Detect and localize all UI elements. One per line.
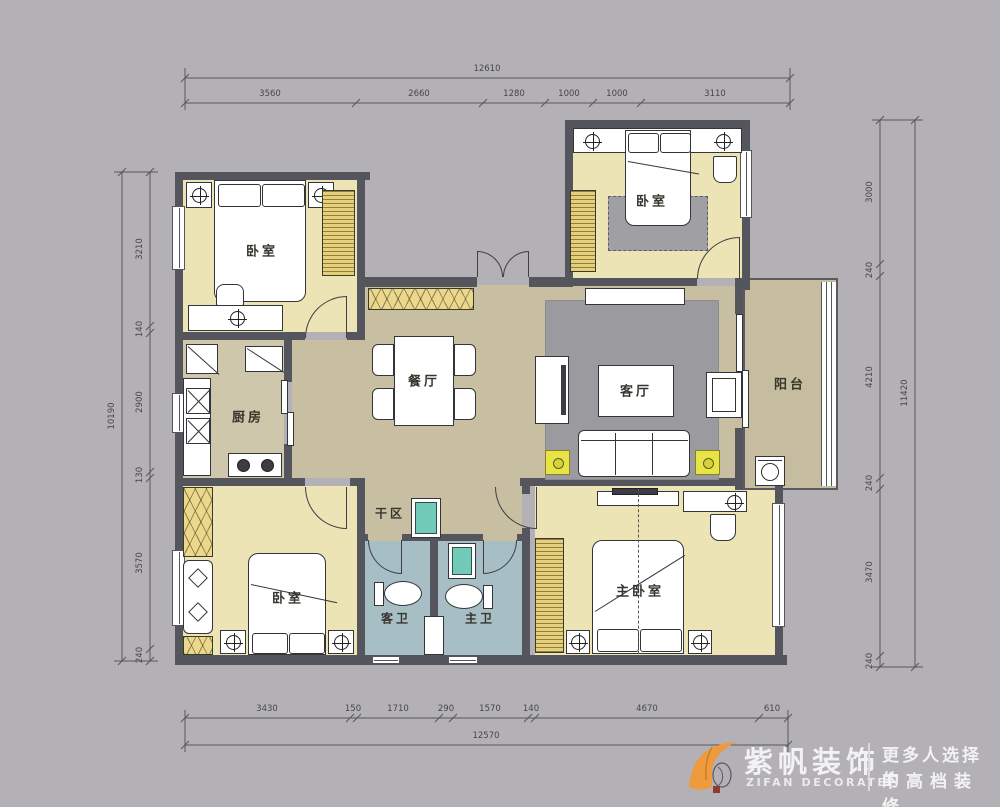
speaker [695,450,720,475]
dim-bottom-seg-6: 4670 [636,704,658,714]
dim-right-seg-5: 240 [865,653,875,669]
dim-bottom-seg-5: 140 [523,704,539,714]
floor-plan-canvas: 12610 3560 2660 1280 1000 1000 3110 3430… [0,0,1000,807]
dim-right-seg-3: 240 [865,475,875,491]
lamp-icon [334,635,349,650]
brand-tagline-2: 中高档装修 [882,767,1000,807]
wall-dry-master-b [517,534,530,541]
window-master-bath [448,656,478,664]
sail-logo-icon [682,735,742,797]
bed [625,130,691,226]
room-label-bedroom-top-right: 卧室 [636,191,668,210]
chaise-lounge [183,560,213,634]
desk-chair [710,514,736,541]
fan-icon [693,635,708,650]
toilet-bowl [384,581,422,606]
dining-chair [372,388,394,420]
wall-dry-master-a [438,534,483,541]
toilet-tank [374,582,384,606]
room-label-kitchen: 厨房 [232,407,264,426]
dim-right-seg-4: 3470 [865,561,875,583]
bed-centerline [638,489,639,659]
window-bedroom-top-left [172,206,185,270]
pillow [597,629,639,652]
room-label-guest-bath: 客卫 [381,610,411,627]
pillow [218,184,261,207]
washbasin [415,502,437,534]
wardrobe [183,636,213,655]
wall-kitchen-right-b [284,444,292,478]
wall-bed1-bottom-b [347,332,365,340]
pillow [660,133,691,153]
dim-top-seg-0: 3560 [259,89,281,99]
burner [237,459,250,472]
toilet-tank [483,585,493,609]
wall-bottom-outer [175,655,787,665]
balcony-slider-panel-1 [736,314,743,372]
wall-kitchen-right-a [284,340,292,382]
wall-master-left-lower [522,528,530,655]
balcony-slider-panel-2 [742,370,749,428]
wall-top-left [175,172,370,180]
side-unit [535,356,569,424]
dim-left-seg-3: 130 [135,467,145,483]
logo-divider [868,743,870,791]
kitchen-sink [186,418,210,444]
room-label-dining: 餐厅 [408,371,440,390]
dim-bottom-total: 12570 [472,731,499,741]
kitchen-sink [186,388,210,414]
desk-chair [713,156,737,183]
dim-right-seg-2: 4210 [865,366,875,388]
dim-bottom-seg-1: 150 [345,704,361,714]
lamp-icon [192,188,207,203]
dim-top-seg-4: 1000 [606,89,628,99]
cushion [188,568,208,588]
sofa-back [581,440,688,441]
wardrobe [570,190,596,272]
dim-top-seg-1: 2660 [408,89,430,99]
dim-bottom-seg-2: 1710 [387,704,409,714]
room-label-bedroom-top-left: 卧室 [246,241,278,260]
wall-bed3-top-a [175,478,305,486]
cushion [188,602,208,622]
shower-door [424,616,444,655]
armchair-seat [712,378,736,412]
wall-dry-guest-b [402,534,438,541]
dim-left-seg-5: 240 [135,647,145,663]
washer-panel [758,460,782,461]
speaker [545,450,570,475]
wall-balcony-top-stub [735,286,743,314]
dim-left-seg-2: 2900 [135,391,145,413]
window-guest-bath [372,656,400,664]
wall-bed1-right [357,172,365,340]
wall-bed1-bottom-a [175,332,305,340]
desk-chair [216,284,244,306]
pillow [262,184,305,207]
lamp-icon [727,495,742,510]
lamp-icon [230,311,245,326]
wall-bed2-bottom-b [735,278,750,286]
room-label-living: 客厅 [620,381,652,400]
wardrobe [183,487,213,557]
room-corridor [292,340,365,478]
pillow [628,133,659,153]
tv-cabinet [585,288,685,305]
wall-bed3-right [357,478,365,665]
dim-right-seg-1: 240 [865,262,875,278]
dim-top-seg-5: 3110 [704,89,726,99]
dim-bottom-seg-3: 290 [438,704,454,714]
wall-bed2-bottom-a [565,278,697,286]
wall-hall-top-a [357,277,477,287]
stove [228,453,282,477]
toilet-bowl [445,584,483,609]
pillow [289,633,325,654]
window-bedroom-top-right [740,150,752,218]
room-label-master-bath: 主卫 [465,610,495,627]
lamp-icon [585,134,600,149]
wall-dry-guest-a [357,534,368,541]
tv-screen [612,488,658,495]
shoe-cabinet [368,288,474,310]
armchair [706,372,742,418]
washbasin [452,547,472,575]
dim-top-seg-2: 1280 [503,89,525,99]
washing-machine [755,456,785,486]
room-label-bedroom-bottom-left: 卧室 [272,588,304,607]
sofa [578,430,690,477]
room-label-balcony: 阳台 [774,374,806,393]
window-master-bedroom [772,503,785,627]
room-label-dry-area: 干区 [375,505,405,522]
dim-left-seg-1: 140 [135,321,145,337]
tv-screen [561,365,566,415]
wardrobe [322,190,355,276]
brand-name-en: ZIFAN DECORATE [746,776,888,789]
dining-chair [454,388,476,420]
burner [261,459,274,472]
kitchen-slider-panel-2 [287,412,294,446]
wall-bed2-top [565,120,750,128]
pillow [252,633,288,654]
lamp-icon [716,134,731,149]
dim-left-seg-0: 3210 [135,238,145,260]
pillow [640,629,682,652]
dim-left-seg-4: 3570 [135,552,145,574]
balcony-bay-window [821,282,836,486]
dim-top-total: 12610 [473,64,500,74]
washer-drum [761,463,779,481]
brand-name-cn: 紫帆装饰 [744,739,880,781]
dining-chair [372,344,394,376]
dim-left-total: 10190 [107,402,117,429]
dim-right-seg-0: 3000 [865,181,875,203]
wardrobe [535,538,564,653]
kitchen-slider-panel-1 [281,380,288,414]
kitchen-cabinet [245,346,283,372]
dim-bottom-seg-0: 3430 [256,704,278,714]
brand-logo: 紫帆装饰 ZIFAN DECORATE 更多人选择的 中高档装修 [680,733,1000,803]
room-label-master-bedroom: 主卧室 [616,581,664,600]
fridge [186,344,218,374]
dining-chair [454,344,476,376]
fan-icon [571,635,586,650]
dim-bottom-seg-4: 1570 [479,704,501,714]
dim-bottom-seg-7: 610 [764,704,780,714]
dim-right-total: 11420 [900,379,910,406]
dim-top-seg-3: 1000 [558,89,580,99]
lamp-icon [226,635,241,650]
